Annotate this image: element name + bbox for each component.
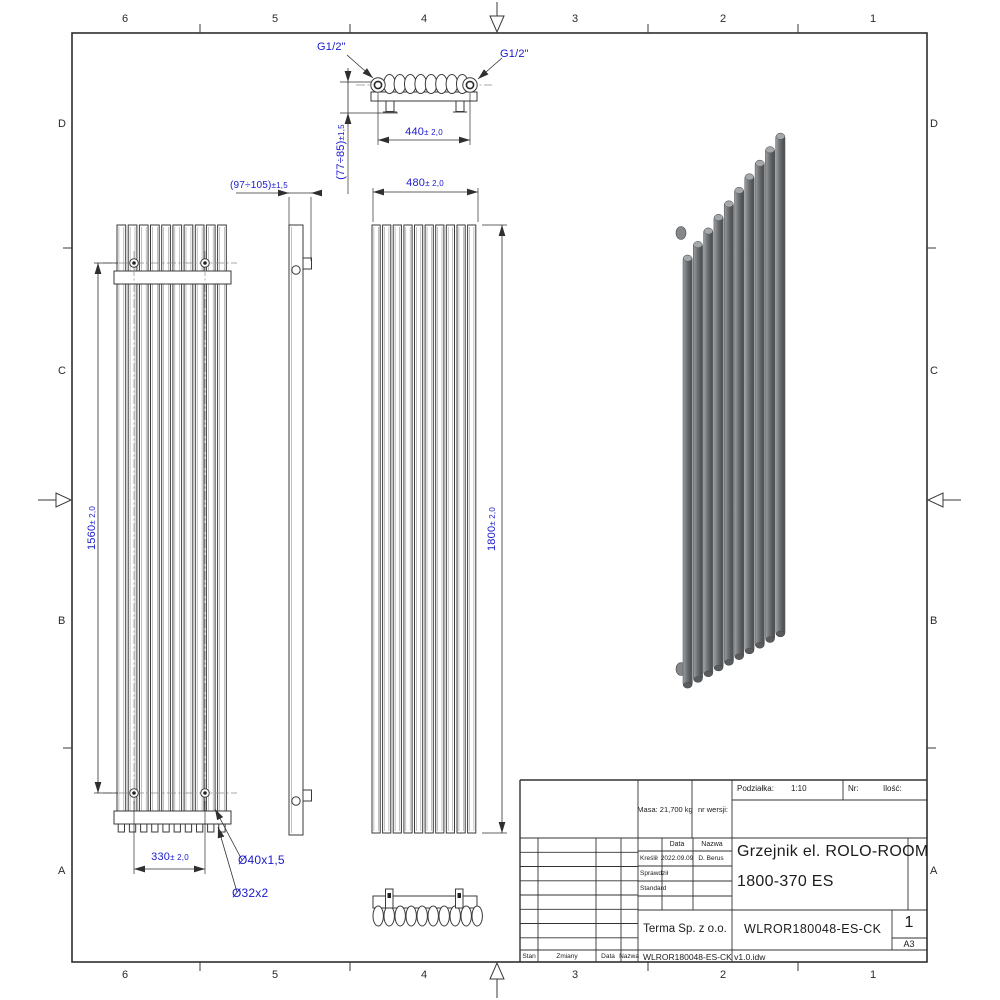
scale-value: 1:10 <box>791 784 807 793</box>
zone-row-label-right: D <box>930 118 938 130</box>
file-name: WLROR180048-ES-CK v1.0.idw <box>643 952 765 962</box>
drawing-title-line1: Grzejnik el. ROLO-ROOM <box>737 843 929 861</box>
iso-tube-cap <box>725 201 734 207</box>
iso-tube-base <box>714 665 723 671</box>
thread-label-left: G1/2" <box>317 41 346 53</box>
quantity-label: Ilość: <box>883 784 902 793</box>
iso-tube <box>704 228 713 677</box>
paper-format: A3 <box>903 939 914 949</box>
dim-axis-height: 1560± 2,0 <box>86 506 98 550</box>
dim-bracket-span-tol: ± 2,0 <box>170 853 189 862</box>
tube-section-oval <box>417 906 427 926</box>
radiator-tube <box>372 225 380 833</box>
tube-section-oval <box>425 75 437 94</box>
tube-section-oval <box>472 906 482 926</box>
iso-tube <box>745 174 754 654</box>
center-mark-left <box>38 493 72 507</box>
zone-column-label-top: 5 <box>272 13 278 25</box>
iso-tube-base <box>694 677 703 683</box>
center-mark-bottom <box>490 962 504 998</box>
dim-total-height: 1800± 2,0 <box>486 507 498 551</box>
dim-axis-height-value: 1560 <box>86 525 98 550</box>
center-mark-right <box>927 493 961 507</box>
tube-end <box>163 824 169 832</box>
tube-section-oval <box>415 75 427 94</box>
zone-row-label-right: C <box>930 365 938 377</box>
radiator-tube <box>404 225 412 833</box>
number-label: Nr: <box>848 784 859 793</box>
iso-tube-cap <box>776 133 785 139</box>
zone-row-label-right: A <box>930 865 937 877</box>
radiator-tube <box>383 225 391 833</box>
column-name: Nazwa <box>701 841 722 848</box>
iso-tube <box>765 147 774 643</box>
tube-section-oval <box>461 906 471 926</box>
iso-view <box>676 133 785 688</box>
tube-section-oval <box>405 75 417 94</box>
iso-tube-base <box>735 654 744 660</box>
dim-front-width-value: 480 <box>406 177 425 189</box>
zone-column-label-top: 4 <box>421 13 427 25</box>
pipe-connection-right <box>463 78 477 92</box>
footer-nazwa: Nazwa <box>619 953 639 960</box>
dim-bracket-span: 330± 2,0 <box>151 851 189 863</box>
iso-tube <box>735 187 744 659</box>
bottom-view <box>373 889 482 926</box>
tube-end <box>208 824 214 832</box>
iso-tube <box>776 133 785 637</box>
radiator-tube <box>139 225 148 824</box>
zone-column-label-top: 2 <box>720 13 726 25</box>
tube-end <box>185 824 191 832</box>
zone-row-label-left: D <box>58 118 66 130</box>
iso-tube-base <box>756 642 765 648</box>
dim-axis-height-tol: ± 2,0 <box>88 506 97 525</box>
dim-side-depth-value: (97÷105) <box>230 180 272 191</box>
radiator-tube <box>184 225 193 824</box>
tube-section-oval <box>406 906 416 926</box>
tube-end <box>197 824 203 832</box>
iso-tube-cap <box>745 174 754 180</box>
iso-tube-cap <box>735 187 744 193</box>
radiator-tube <box>151 225 160 824</box>
iso-tube <box>755 160 764 648</box>
zone-row-label-left: A <box>58 865 65 877</box>
iso-connector-top <box>676 227 686 240</box>
tube-section-oval <box>394 75 406 94</box>
iso-tube-cap <box>694 242 703 248</box>
radiator-tube <box>206 225 215 824</box>
tube-section-oval <box>428 906 438 926</box>
tube-end <box>174 824 180 832</box>
bracket-rail-bottom <box>114 811 231 824</box>
thread-label-right: G1/2" <box>500 48 529 60</box>
tube-section-oval <box>450 906 460 926</box>
radiator-tube <box>173 225 182 824</box>
zone-column-label-bottom: 5 <box>272 969 278 981</box>
dim-top-width: 440± 2,0 <box>405 126 443 138</box>
dim-tube-diameter: Ø40x1,5 <box>238 853 285 867</box>
footer-zmiany: Zmiany <box>556 953 577 960</box>
tube-section-oval <box>395 906 405 926</box>
dim-side-depth-tol: ±1,5 <box>272 181 288 190</box>
side-view <box>289 225 312 835</box>
footer-data: Data <box>601 953 615 960</box>
radiator-tube <box>128 225 137 824</box>
tube-end <box>129 824 135 832</box>
zone-column-label-bottom: 6 <box>122 969 128 981</box>
mass-value: Masa: 21,700 kg <box>637 805 692 814</box>
radiator-tube <box>446 225 454 833</box>
iso-tube-base <box>776 631 785 637</box>
drawn-by: D. Berus <box>698 855 723 862</box>
dim-side-depth: (97÷105)±1,5 <box>230 180 288 191</box>
dim-total-height-tol: ± 2,0 <box>488 507 497 526</box>
zone-column-label-bottom: 1 <box>870 969 876 981</box>
zone-column-label-bottom: 2 <box>720 969 726 981</box>
standard-label: Standard <box>640 885 666 892</box>
rear-view <box>372 225 476 833</box>
iso-tube-cap <box>714 214 723 220</box>
iso-tube-base <box>683 682 692 688</box>
radiator-tube <box>393 225 401 833</box>
pipe-connection-left <box>371 78 385 92</box>
iso-tube <box>683 255 692 688</box>
tube-end <box>141 824 147 832</box>
zone-column-label-top: 6 <box>122 13 128 25</box>
checked-label: Sprawdził <box>640 870 668 877</box>
iso-tube-cap <box>683 255 692 261</box>
radiator-tube <box>425 225 433 833</box>
column-date: Data <box>670 841 685 848</box>
bracket-rail-top <box>114 271 231 284</box>
footer-stan: Stan <box>522 953 535 960</box>
drawing-sheet: 440± 2,0 (77÷85)±1,5 (97÷105)±1,5 480± 2… <box>0 0 1000 1000</box>
company-name: Terma Sp. z o.o. <box>643 923 727 935</box>
dim-top-depth: (77÷85)±1,5 <box>335 124 347 180</box>
dim-front-width: 480± 2,0 <box>406 177 444 189</box>
iso-tube <box>714 214 723 671</box>
dim-top-width-value: 440 <box>405 126 424 138</box>
dim-collector-diameter: Ø32x2 <box>232 886 268 900</box>
zone-column-label-bottom: 3 <box>572 969 578 981</box>
drawn-date: 2022.09.09 <box>661 855 694 862</box>
drawn-label: Kreślił <box>640 855 658 862</box>
radiator-tube <box>436 225 444 833</box>
center-mark-top <box>490 2 504 33</box>
sheet-number: 1 <box>905 914 914 932</box>
radiator-tube <box>415 225 423 833</box>
dim-top-depth-tol: ±1,5 <box>337 124 346 140</box>
iso-tube-base <box>725 660 734 666</box>
zone-column-label-top: 1 <box>870 13 876 25</box>
zone-row-label-right: B <box>930 615 937 627</box>
tube-section-oval <box>384 906 394 926</box>
zone-row-label-left: B <box>58 615 65 627</box>
iso-tube-cap <box>766 147 775 153</box>
tube-section-oval <box>436 75 448 94</box>
dim-total-height-value: 1800 <box>486 526 498 551</box>
drawing-title-line2: 1800-370 ES <box>737 873 834 891</box>
dim-top-depth-value: (77÷85) <box>335 141 347 180</box>
dim-front-width-tol: ± 2,0 <box>425 179 444 188</box>
iso-tube-base <box>745 648 754 654</box>
radiator-tube <box>218 225 227 824</box>
tube-end <box>118 824 124 832</box>
zone-column-label-top: 3 <box>572 13 578 25</box>
radiator-tube <box>162 225 171 824</box>
tube-end <box>152 824 158 832</box>
radiator-tube <box>468 225 476 833</box>
iso-tube-base <box>704 671 713 677</box>
tube-section-oval <box>439 906 449 926</box>
tube-section-oval <box>446 75 458 94</box>
side-bracket-bottom <box>303 790 312 801</box>
iso-tube-base <box>766 637 775 643</box>
dim-top-width-tol: ± 2,0 <box>424 128 443 137</box>
top-view <box>356 75 492 113</box>
zone-column-label-bottom: 4 <box>421 969 427 981</box>
iso-tube-cap <box>704 228 713 234</box>
version-label: nr wersji: <box>698 805 728 814</box>
iso-tube <box>693 241 702 682</box>
radiator-tube <box>457 225 465 833</box>
zone-row-label-left: C <box>58 365 66 377</box>
part-number: WLROR180048-ES-CK <box>744 922 881 936</box>
side-bracket-top <box>303 258 312 269</box>
tube-end <box>219 824 225 832</box>
dim-bracket-span-value: 330 <box>151 851 170 863</box>
radiator-tube <box>117 225 126 824</box>
radiator-tube <box>195 225 204 824</box>
front-view <box>103 225 237 832</box>
scale-label: Podziałka: <box>737 784 774 793</box>
tube-section-oval <box>373 906 383 926</box>
iso-tube <box>724 201 733 665</box>
iso-tube-cap <box>756 160 765 166</box>
